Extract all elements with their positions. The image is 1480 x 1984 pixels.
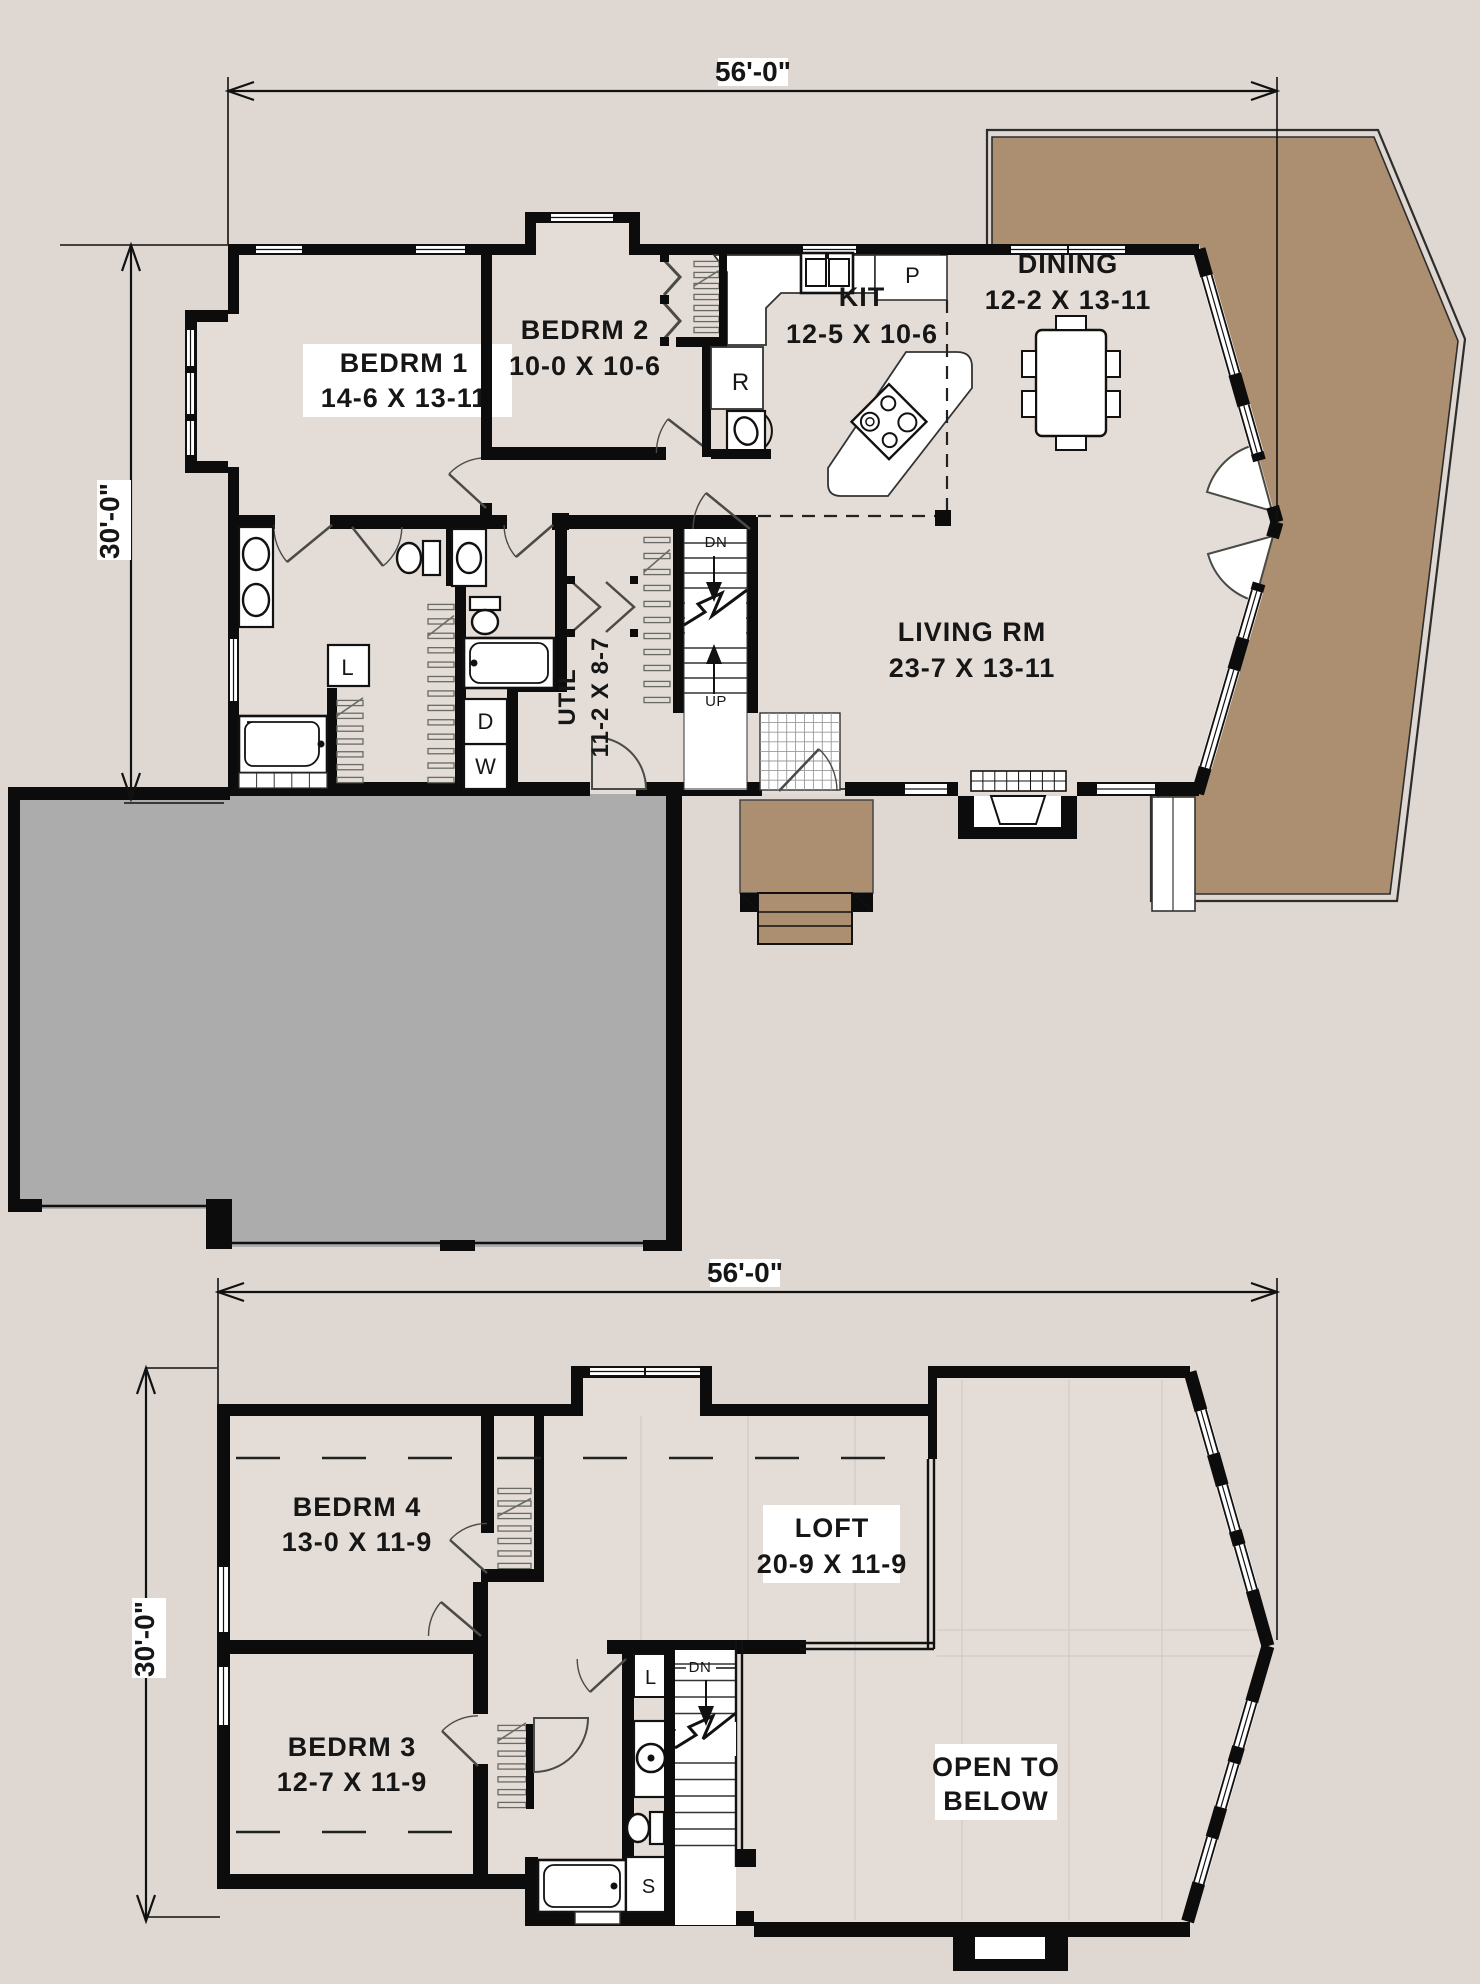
svg-text:12-5 X 10-6: 12-5 X 10-6 — [786, 319, 938, 349]
svg-text:30'-0": 30'-0" — [94, 483, 125, 559]
svg-text:23-7 X 13-11: 23-7 X 13-11 — [889, 653, 1056, 683]
svg-text:12-7 X 11-9: 12-7 X 11-9 — [277, 1767, 428, 1797]
svg-text:LIVING RM: LIVING RM — [898, 617, 1047, 647]
svg-text:UTIL: UTIL — [554, 668, 581, 725]
svg-text:LOFT: LOFT — [795, 1513, 869, 1543]
svg-text:KIT: KIT — [839, 282, 886, 312]
svg-text:S: S — [642, 1876, 656, 1898]
svg-text:BEDRM 1: BEDRM 1 — [340, 348, 469, 378]
svg-text:56'-0": 56'-0" — [707, 1257, 783, 1288]
svg-text:L: L — [645, 1667, 657, 1689]
svg-text:30'-0": 30'-0" — [129, 1601, 160, 1677]
svg-text:BELOW: BELOW — [943, 1786, 1049, 1816]
svg-text:DINING: DINING — [1018, 249, 1119, 279]
svg-text:BEDRM 4: BEDRM 4 — [293, 1492, 422, 1522]
svg-text:BEDRM 3: BEDRM 3 — [288, 1732, 417, 1762]
svg-text:DN: DN — [689, 1659, 712, 1676]
svg-text:OPEN TO: OPEN TO — [932, 1752, 1060, 1782]
svg-text:20-9 X 11-9: 20-9 X 11-9 — [757, 1549, 908, 1579]
svg-text:13-0 X 11-9: 13-0 X 11-9 — [282, 1527, 433, 1557]
svg-text:56'-0": 56'-0" — [715, 56, 791, 87]
svg-text:P: P — [905, 263, 921, 288]
svg-text:W: W — [475, 754, 497, 779]
svg-text:14-6 X 13-11: 14-6 X 13-11 — [321, 383, 488, 413]
svg-text:12-2 X 13-11: 12-2 X 13-11 — [985, 285, 1152, 315]
svg-text:10-0 X 10-6: 10-0 X 10-6 — [509, 351, 661, 381]
svg-text:UP: UP — [705, 693, 727, 710]
svg-text:L: L — [341, 655, 354, 680]
svg-text:BEDRM 2: BEDRM 2 — [521, 315, 650, 345]
svg-text:11-2 X 8-7: 11-2 X 8-7 — [587, 637, 614, 758]
svg-text:DN: DN — [705, 534, 728, 551]
svg-text:R: R — [732, 369, 750, 396]
svg-text:D: D — [478, 709, 495, 734]
